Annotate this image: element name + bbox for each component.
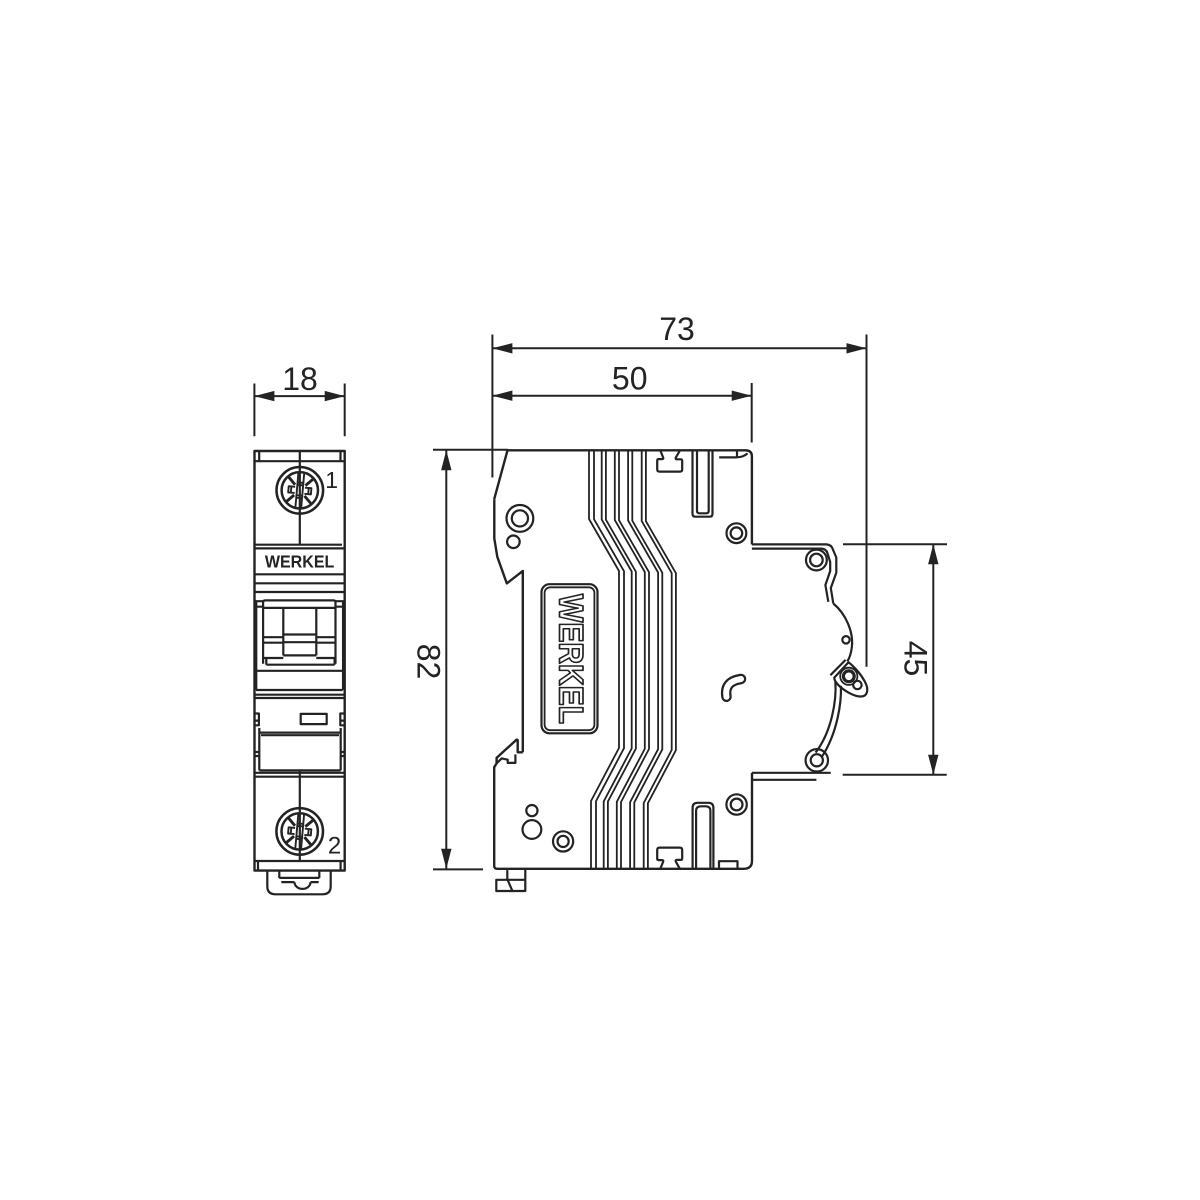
svg-text:50: 50 [612, 361, 648, 397]
svg-text:2: 2 [328, 833, 341, 860]
svg-text:82: 82 [411, 644, 447, 680]
svg-text:73: 73 [659, 311, 695, 347]
svg-text:1: 1 [325, 467, 338, 493]
svg-text:WERKEL: WERKEL [552, 594, 590, 724]
svg-text:45: 45 [898, 641, 934, 677]
svg-text:WERKEL: WERKEL [265, 551, 335, 571]
svg-text:18: 18 [282, 361, 318, 397]
